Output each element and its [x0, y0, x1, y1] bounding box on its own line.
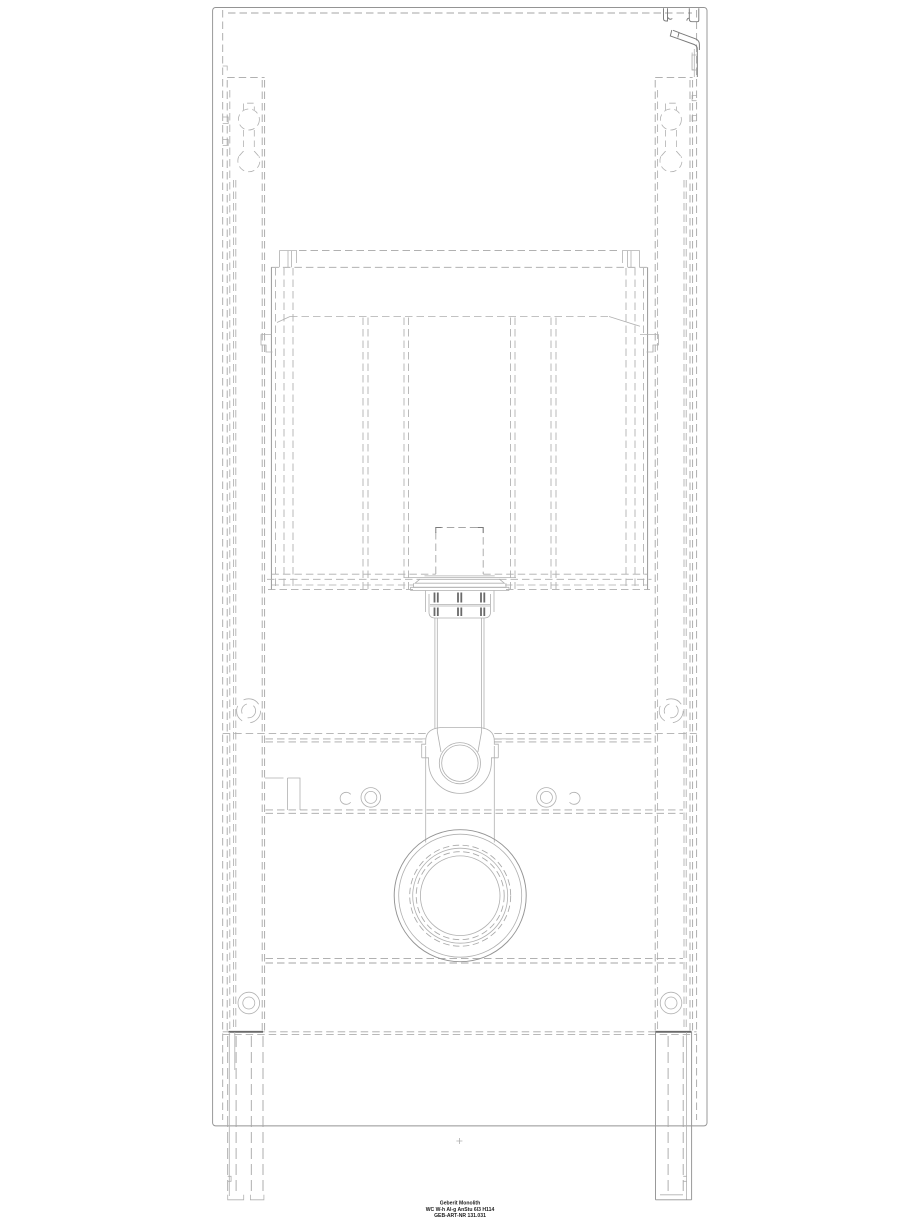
svg-text:Geberit Monolith: Geberit Monolith: [440, 1201, 480, 1207]
svg-text:GEB-ART-NR 131.031: GEB-ART-NR 131.031: [434, 1213, 486, 1219]
